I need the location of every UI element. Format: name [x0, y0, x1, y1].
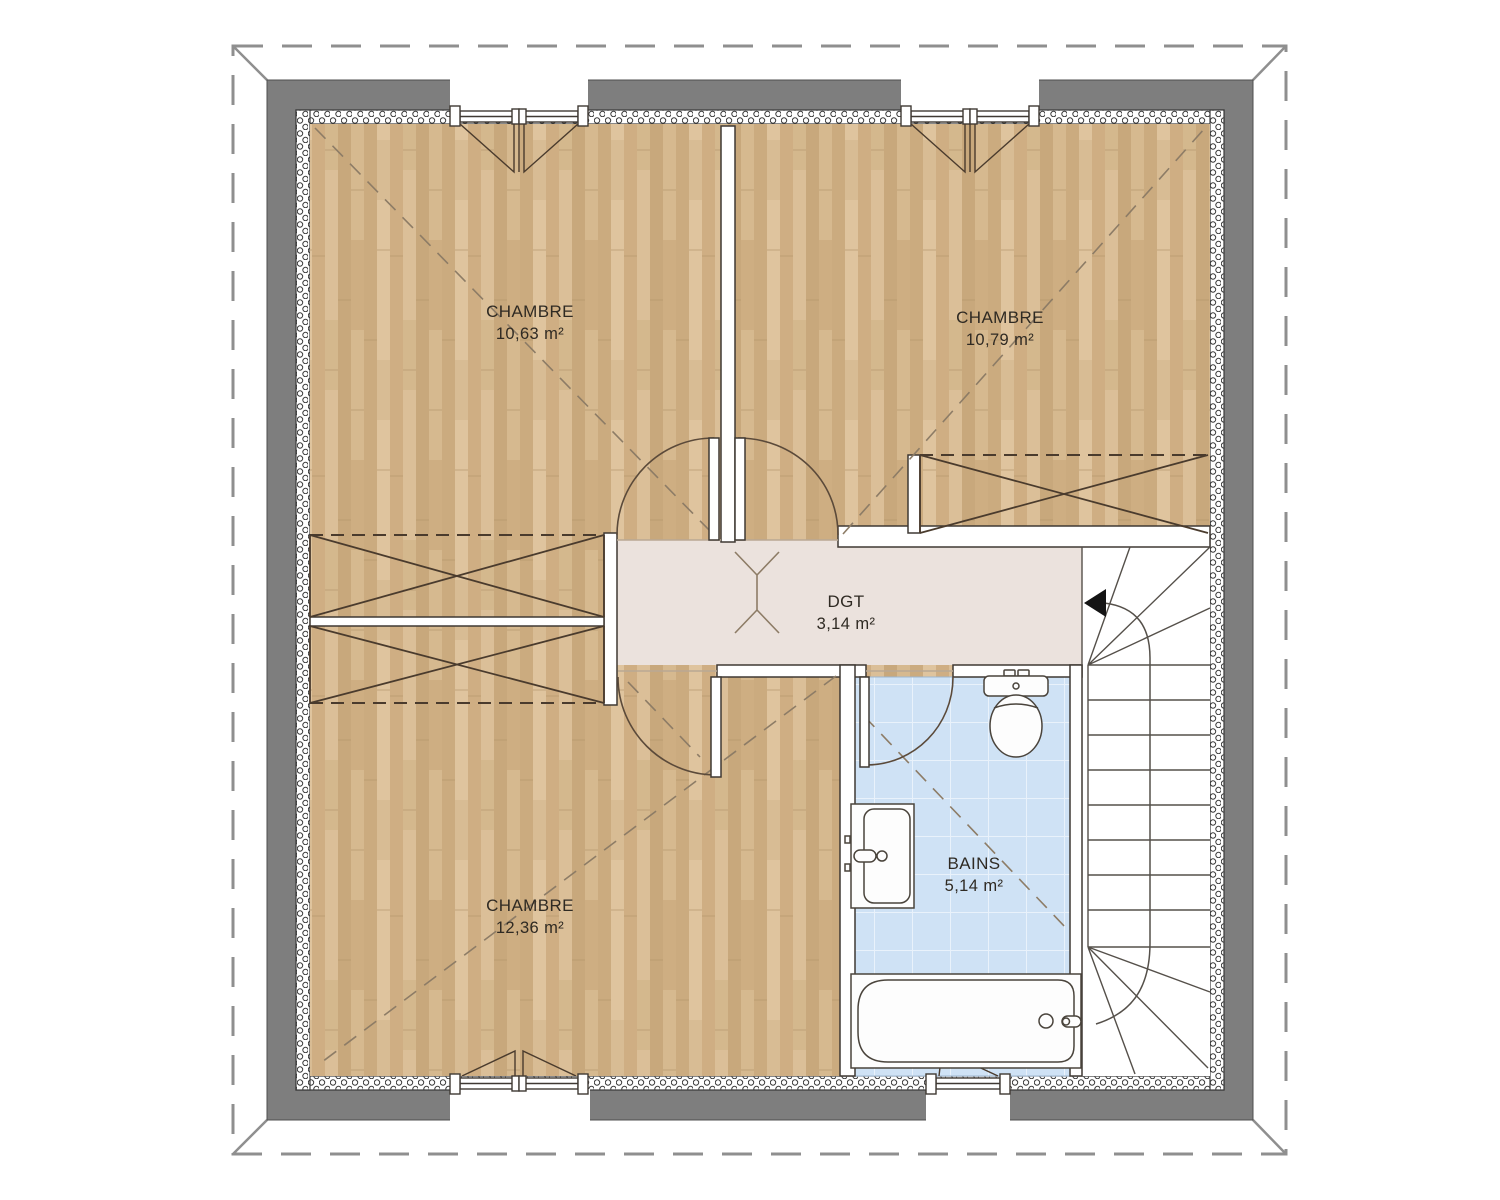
bathtub-icon [851, 974, 1081, 1068]
sink-icon [845, 804, 914, 908]
hallway-floor [617, 540, 1082, 665]
floor-plan-canvas: CHAMBRE 10,63 m² CHAMBRE 10,79 m² DGT 3,… [0, 0, 1500, 1200]
floor-plan-drawing [0, 0, 1500, 1200]
